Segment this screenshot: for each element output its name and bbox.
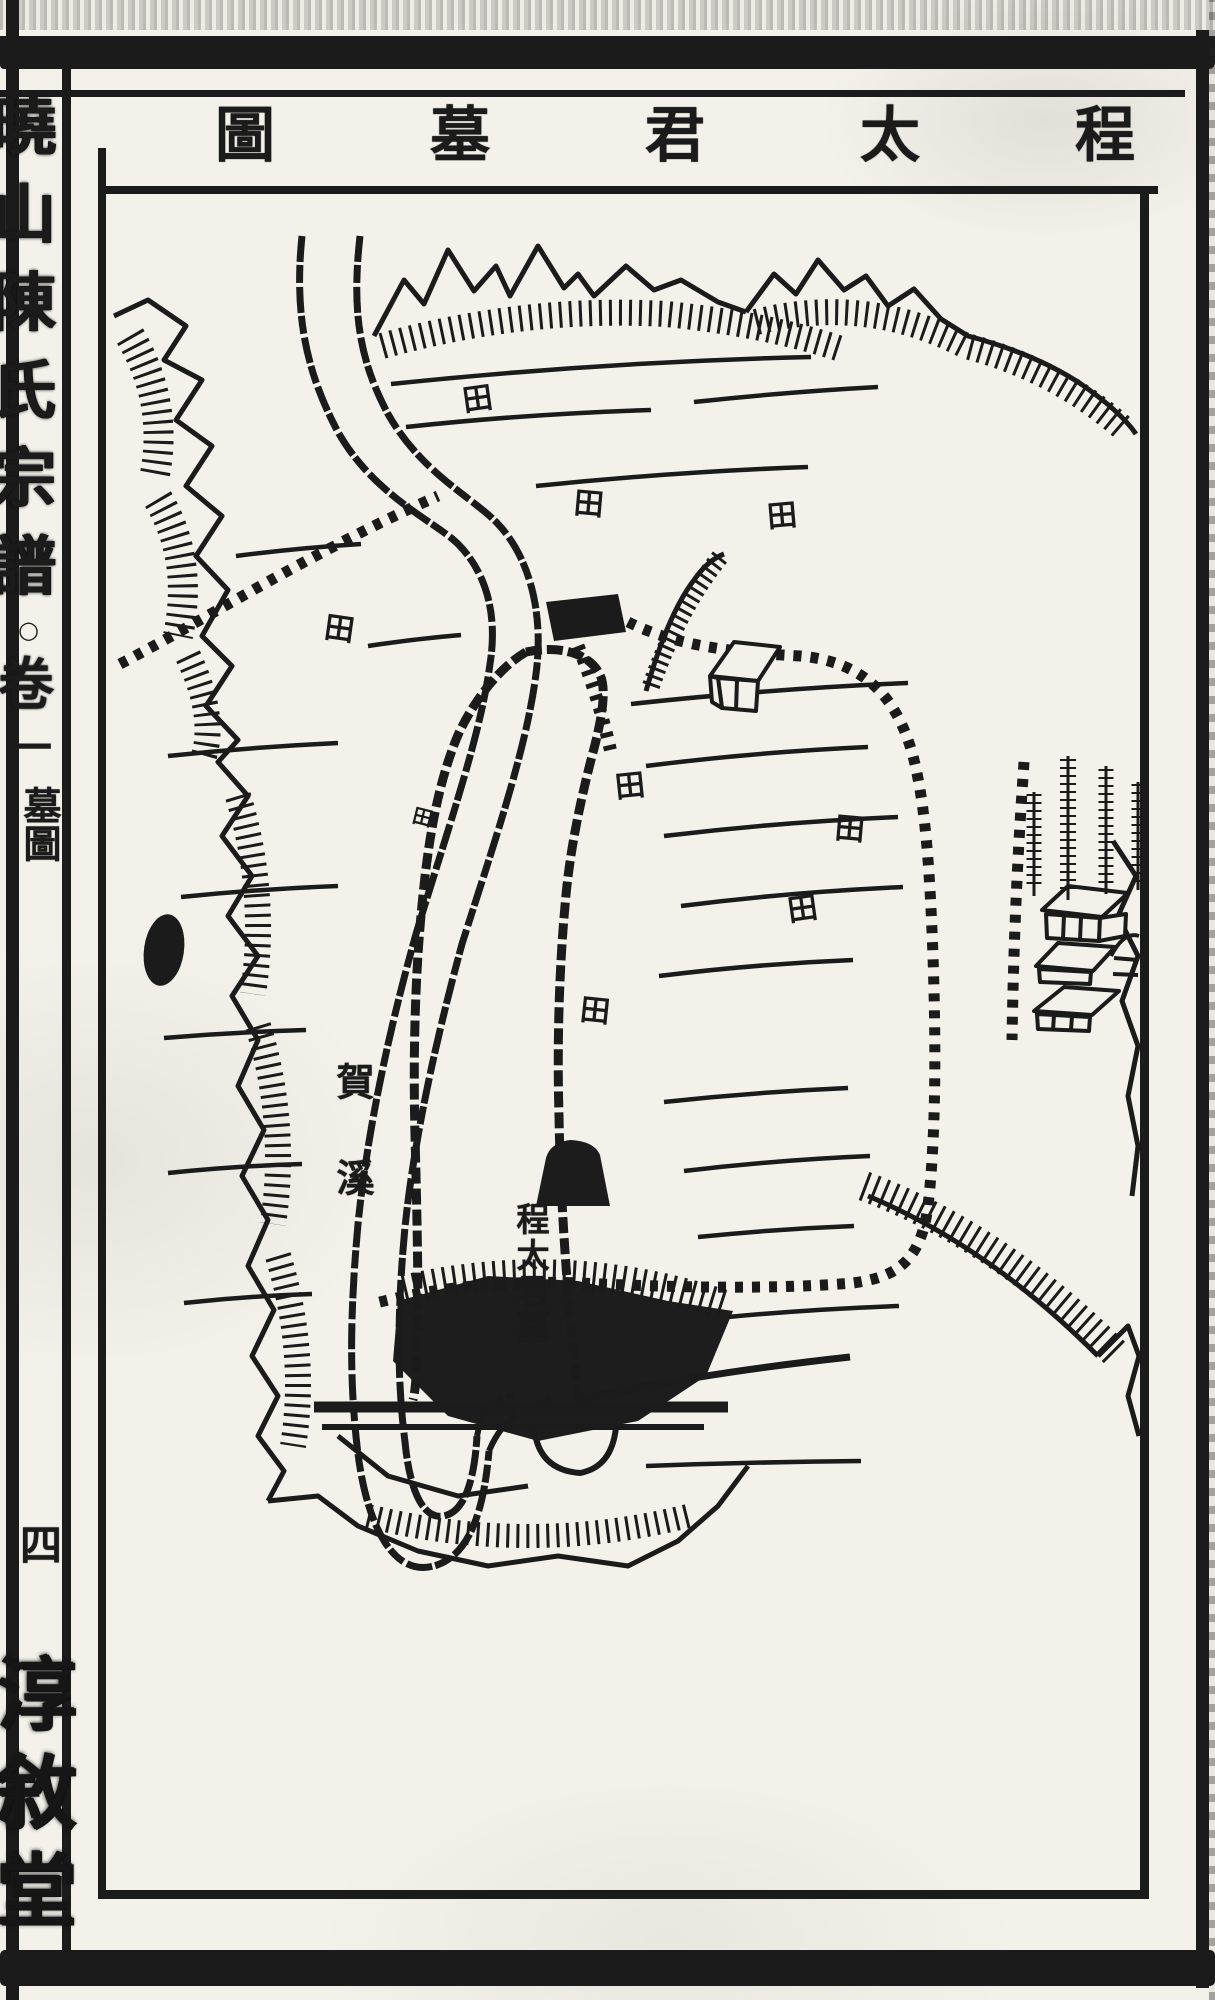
field-markers: 田 田 田 田 田 田 田 田 田 [322, 380, 866, 1030]
book-title-char: 譜 [0, 524, 56, 612]
pine-trees [1034, 756, 1138, 900]
outer-right-border [1196, 30, 1209, 1988]
title-char-4: 墓 [430, 96, 490, 176]
mountains-left [114, 300, 298, 1501]
top-edge-scan-noise [0, 0, 1215, 30]
book-title-char: 宗 [0, 436, 56, 524]
field-marker: 田 [833, 811, 866, 848]
map-frame-left [98, 148, 106, 1898]
grave-mound [536, 1140, 610, 1206]
map-frame-right [1140, 186, 1149, 1898]
hall-mark-char: 淳 [0, 1646, 76, 1744]
title-char-2: 太 [860, 96, 920, 176]
field-marker: 田 [613, 768, 646, 806]
title-char-1: 程 [1075, 96, 1135, 176]
volume-char: 卷 [0, 648, 54, 722]
volume-marker: ○ [18, 612, 39, 648]
field-marker: 田 [766, 498, 799, 535]
mountains-bottom [268, 841, 1139, 1566]
volume-number: 一 [6, 722, 52, 774]
outer-bottom-border [0, 1950, 1215, 1986]
title-char-3: 君 [645, 96, 705, 176]
field-marker: 田 [785, 890, 820, 929]
grave-map-drawing: 田 田 田 田 田 田 田 田 田 [106, 194, 1140, 1894]
hall-mark-char: 堂 [0, 1842, 76, 1940]
page-title: 程 太 君 墓 圖 [215, 96, 1135, 184]
hall-mark-char: 敘 [0, 1744, 76, 1842]
field-marker: 田 [578, 993, 611, 1031]
spine-book-title: 曉 山 陳 氏 宗 譜 ○ 卷 一 [0, 84, 64, 774]
book-title-char: 曉 [0, 84, 56, 172]
scanned-genealogy-page: { "header": { "title_full": "程太君墓圖", "ti… [0, 0, 1215, 2000]
publisher-hall-mark: 淳 敘 堂 [0, 1646, 76, 1940]
temple-house [710, 642, 780, 711]
ink-blot [139, 912, 189, 989]
river-label: 賀溪 [334, 1062, 380, 1282]
field-marker: 田 [572, 486, 605, 523]
outer-top-border [0, 36, 1215, 69]
field-marker: 田 [322, 610, 357, 649]
spine-section-label: 墓圖 [16, 786, 66, 862]
field-marker: 田 [460, 380, 495, 419]
title-char-5: 圖 [215, 96, 275, 176]
book-title-char: 山 [0, 172, 56, 260]
right-edge-scan-noise [1209, 0, 1215, 2000]
bridge [546, 594, 626, 641]
map-frame-top [98, 186, 1158, 194]
spine-page-number: 四 [20, 1512, 62, 1573]
book-title-char: 陳 [0, 260, 56, 348]
book-title-char: 氏 [0, 348, 56, 436]
grave-label: 程太君墓 [512, 1202, 554, 1372]
